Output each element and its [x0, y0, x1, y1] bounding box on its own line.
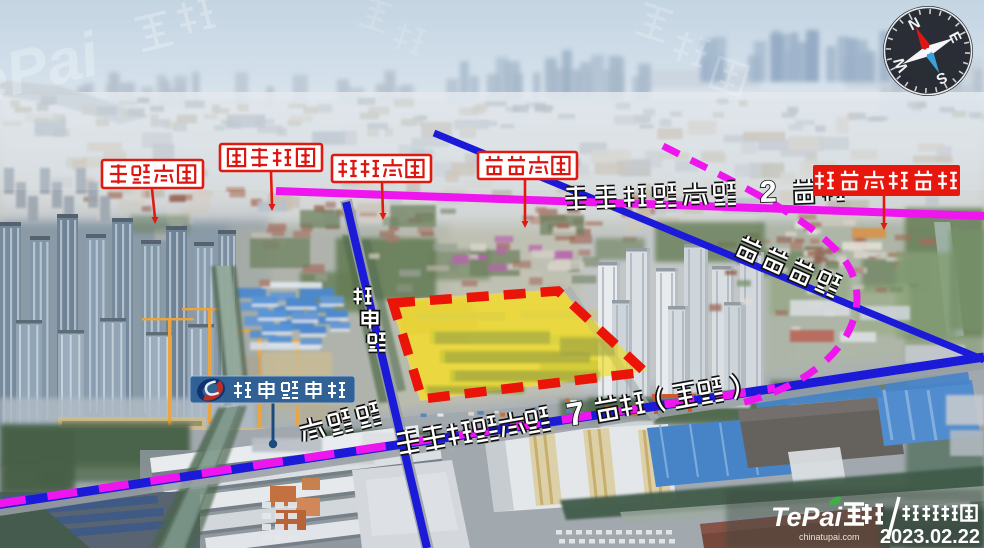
svg-text:TePai: TePai: [771, 502, 843, 532]
svg-text:2023.02.22: 2023.02.22: [880, 526, 980, 548]
svg-text:chinatupai.com: chinatupai.com: [799, 532, 860, 542]
svg-text:2: 2: [759, 175, 777, 209]
